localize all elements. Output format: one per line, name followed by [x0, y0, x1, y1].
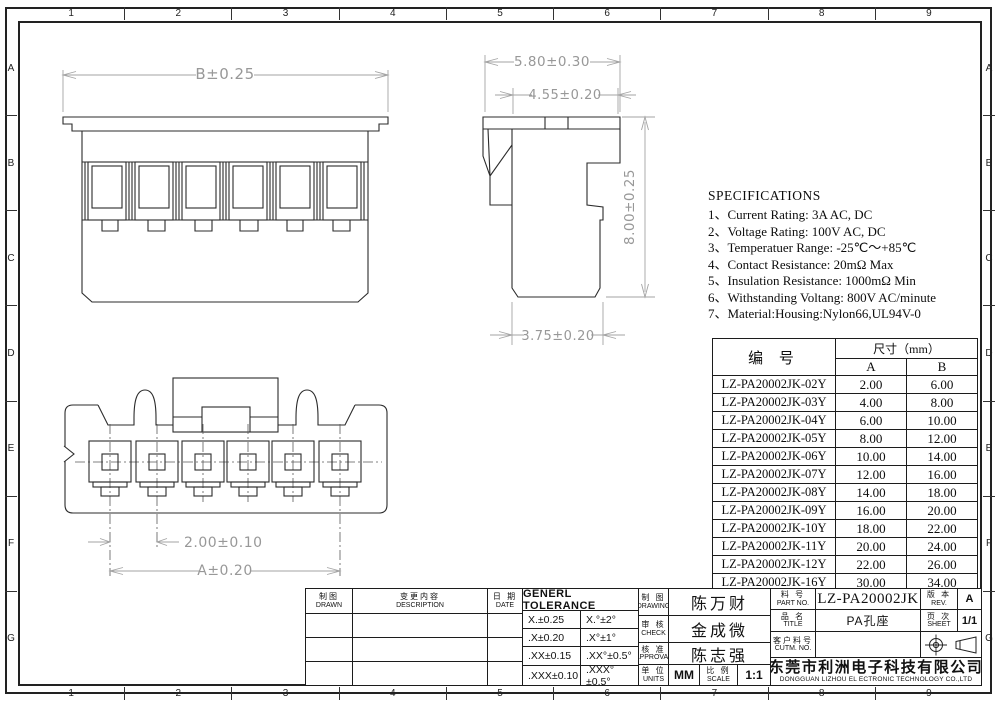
label-en: SHEET: [927, 621, 950, 629]
zone-number: 6: [554, 7, 661, 20]
dim-b-cell: 16.00: [907, 466, 978, 484]
zone-number: 9: [876, 687, 982, 700]
table-row: LZ-PA20002JK-12Y22.0026.00: [713, 556, 978, 574]
part-no-cell: LZ-PA20002JK-08Y: [713, 484, 836, 502]
rev-label-cell: 版 本REV.: [921, 589, 957, 609]
part-no-cell: LZ-PA20002JK-09Y: [713, 502, 836, 520]
dim-a-cell: 8.00: [836, 430, 907, 448]
company-name-cn: 东莞市利洲电子科技有限公司: [771, 660, 981, 677]
label-cn: 品 名: [781, 612, 805, 621]
tolerance-cell: .XX±0.15: [523, 647, 580, 665]
label-en: CUTM. NO.: [775, 645, 812, 653]
zone-number: 5: [447, 7, 554, 20]
label-en: REV.: [931, 600, 947, 608]
zone-letter: E: [983, 402, 995, 497]
zone-number: 6: [554, 687, 661, 700]
ruler-bottom: 1 2 3 4 5 6 7 8 9: [18, 687, 982, 700]
zone-letter: F: [983, 497, 995, 592]
ruler-top: 1 2 3 4 5 6 7 8 9: [18, 7, 982, 20]
ruler-right: A B C D E F G: [983, 21, 995, 686]
zone-number: 7: [661, 687, 768, 700]
table-row: LZ-PA20002JK-02Y2.006.00: [713, 376, 978, 394]
label-cn: 核 准: [641, 645, 665, 654]
tolerance-cell: .XXX°±0.5°: [581, 666, 638, 685]
scale-value-cell: 1:1: [738, 665, 770, 685]
zone-number: 1: [18, 687, 125, 700]
col-header-size: 尺寸（mm）: [836, 339, 978, 359]
label-cn: 料 号: [781, 590, 805, 599]
ruler-left: A B C D E F G: [5, 21, 17, 686]
col-header-a: A: [836, 358, 907, 375]
dim-text-side-inner: 4.55±0.20: [528, 88, 601, 103]
zone-letter: B: [5, 116, 17, 211]
dim-a-cell: 22.00: [836, 556, 907, 574]
part-no-cell: LZ-PA20002JK-04Y: [713, 412, 836, 430]
label-en: DATE: [496, 602, 514, 610]
revision-cell: [306, 614, 352, 637]
revision-cell: [353, 662, 487, 685]
pin-holes: [89, 441, 361, 496]
revision-cell: [488, 662, 522, 685]
company-cell: 东莞市利洲电子科技有限公司 DONGGUAN LIZHOU EL ECTRONI…: [771, 658, 981, 685]
dim-a-cell: 6.00: [836, 412, 907, 430]
table-row: LZ-PA20002JK-08Y14.0018.00: [713, 484, 978, 502]
zone-number: 1: [18, 7, 125, 20]
contact-cavities: [85, 162, 364, 220]
drawn-header-cell: 制图DRAWN: [306, 589, 352, 613]
table-row: LZ-PA20002JK-04Y6.0010.00: [713, 412, 978, 430]
table-header-row: 编 号 尺寸（mm）: [713, 339, 978, 359]
label-cn: 单 位: [641, 666, 665, 675]
table-row: LZ-PA20002JK-06Y10.0014.00: [713, 448, 978, 466]
label-en: CHECK: [641, 630, 666, 638]
latch-tab-inner: [202, 407, 250, 432]
zone-letter: E: [5, 402, 17, 497]
front-view-drawing: B±0.25: [50, 48, 400, 338]
spec-line: 1、Current Rating: 3A AC, DC: [708, 207, 988, 224]
drawing-label-cell: 制 图DRAWING: [639, 589, 668, 615]
revision-cell: [306, 638, 352, 661]
projection-symbol-cell: [921, 632, 981, 657]
dim-b-cell: 8.00: [907, 394, 978, 412]
dim-b-cell: 24.00: [907, 538, 978, 556]
zone-letter: G: [983, 592, 995, 686]
specifications-block: SPECIFICATIONS 1、Current Rating: 3A AC, …: [708, 188, 988, 323]
units-value-cell: MM: [669, 665, 699, 685]
dim-text-front-width: B±0.25: [195, 65, 254, 83]
units-label-cell: 单 位UNITS: [639, 665, 668, 685]
dim-b-cell: 20.00: [907, 502, 978, 520]
revision-cell: [306, 662, 352, 685]
tolerance-cell: X.°±2°: [581, 611, 638, 628]
revision-cell: [353, 638, 487, 661]
zone-letter: F: [5, 497, 17, 592]
label-en: SCALE: [707, 676, 730, 684]
tolerance-cell: .XXX±0.10: [523, 666, 580, 685]
zone-number: 4: [340, 7, 447, 20]
description-header-cell: 变更内容DESCRIPTION: [353, 589, 487, 613]
side-latch-outline: [483, 129, 512, 205]
housing-body-outline: [82, 131, 368, 302]
check-name-cell: 金成微: [669, 616, 770, 642]
zone-number: 3: [232, 687, 339, 700]
polarize-notch: [64, 446, 74, 462]
drawing-sheet: 1 2 3 4 5 6 7 8 9 1 2 3 4 5 6 7 8 9 A B …: [0, 0, 1000, 702]
label-cn: 制图: [319, 592, 339, 601]
title-block: 制图DRAWN 变更内容DESCRIPTION 日 期DATE GENERL T…: [305, 588, 982, 686]
label-en: DRAWN: [316, 602, 342, 610]
check-label-cell: 审 核CHECK: [639, 616, 668, 642]
dim-text-span: A±0.20: [197, 563, 252, 579]
side-body-outline: [512, 129, 620, 297]
product-name-cell: PA孔座: [816, 610, 920, 631]
zone-letter: A: [983, 21, 995, 116]
spec-line: 7、Material:Housing:Nylon66,UL94V-0: [708, 306, 988, 323]
spec-line: 3、Temperatuer Range: -25℃～+85℃: [708, 240, 988, 257]
spec-line: 4、Contact Resistance: 20mΩ Max: [708, 257, 988, 274]
label-en: DRAWING: [639, 603, 668, 611]
label-cn: 日 期: [493, 592, 517, 601]
approval-label-cell: 核 准APPROVAL: [639, 643, 668, 664]
zone-number: 3: [232, 7, 339, 20]
dim-b-cell: 22.00: [907, 520, 978, 538]
part-no-cell: LZ-PA20002JK-10Y: [713, 520, 836, 538]
part-no-cell: LZ-PA20002JK-07Y: [713, 466, 836, 484]
tolerance-title-cell: GENERL TOLERANCE: [523, 589, 638, 610]
dim-b-cell: 10.00: [907, 412, 978, 430]
tolerance-cell: .XX°±0.5°: [581, 647, 638, 665]
table-row: LZ-PA20002JK-07Y12.0016.00: [713, 466, 978, 484]
part-no-cell: LZ-PA20002JK-05Y: [713, 430, 836, 448]
label-cn: 版 本: [927, 590, 951, 599]
part-no-cell: LZ-PA20002JK-12Y: [713, 556, 836, 574]
zone-number: 5: [447, 687, 554, 700]
dim-a-cell: 14.00: [836, 484, 907, 502]
table-row: LZ-PA20002JK-09Y16.0020.00: [713, 502, 978, 520]
label-en: TITLE: [783, 621, 802, 629]
label-en: PART NO.: [777, 600, 809, 608]
cavity-shelf-notches: [82, 220, 368, 231]
scale-label-cell: 比 例SCALE: [700, 665, 737, 685]
label-cn: 制 图: [641, 593, 665, 602]
col-header-b: B: [907, 358, 978, 375]
dim-a-cell: 4.00: [836, 394, 907, 412]
zone-number: 4: [340, 687, 447, 700]
dim-a-cell: 18.00: [836, 520, 907, 538]
label-cn: 变更内容: [400, 592, 440, 601]
table-row: LZ-PA20002JK-10Y18.0022.00: [713, 520, 978, 538]
part-no-value-cell: LZ-PA20002JK: [816, 589, 920, 609]
zone-number: 7: [661, 7, 768, 20]
side-view-drawing: 5.80±0.30 4.55±0.20 8.00±0.25 3.75±0.20: [450, 40, 680, 360]
zone-number: 2: [125, 687, 232, 700]
bottom-top-profile-left: [98, 390, 173, 425]
spec-line: 2、Voltage Rating: 100V AC, DC: [708, 224, 988, 241]
revision-cell: [353, 614, 487, 637]
third-angle-projection-icon: [923, 634, 979, 656]
part-no-cell: LZ-PA20002JK-02Y: [713, 376, 836, 394]
label-cn: 审 核: [641, 620, 665, 629]
part-no-cell: LZ-PA20002JK-11Y: [713, 538, 836, 556]
dim-a-cell: 12.00: [836, 466, 907, 484]
table-row: LZ-PA20002JK-11Y20.0024.00: [713, 538, 978, 556]
zone-letter: G: [5, 592, 17, 686]
part-no-label-cell: 料 号PART NO.: [771, 589, 815, 609]
dim-b-cell: 26.00: [907, 556, 978, 574]
dim-text-side-height: 8.00±0.25: [622, 169, 638, 245]
part-no-cell: LZ-PA20002JK-03Y: [713, 394, 836, 412]
label-cn: 客户料号: [773, 636, 813, 645]
centerlines: [75, 424, 382, 576]
product-label-cell: 品 名TITLE: [771, 610, 815, 631]
table-row: LZ-PA20002JK-03Y4.008.00: [713, 394, 978, 412]
tolerance-cell: .X°±1°: [581, 629, 638, 646]
sheet-label-cell: 页 次SHEET: [921, 610, 957, 631]
rev-value-cell: A: [958, 589, 981, 609]
zone-letter: D: [5, 306, 17, 401]
label-en: APPROVAL: [639, 654, 668, 662]
table-row: LZ-PA20002JK-05Y8.0012.00: [713, 430, 978, 448]
drawing-name-cell: 陈万财: [669, 589, 770, 615]
approval-name-cell: 陈志强: [669, 643, 770, 664]
dim-text-side-bottom: 3.75±0.20: [521, 329, 594, 344]
zone-letter: C: [5, 211, 17, 306]
part-no-cell: LZ-PA20002JK-06Y: [713, 448, 836, 466]
label-en: DESCRIPTION: [396, 602, 444, 610]
dim-b-cell: 12.00: [907, 430, 978, 448]
spec-line: 6、Withstanding Voltang: 800V AC/minute: [708, 290, 988, 307]
customer-part-no-label-cell: 客户料号CUTM. NO.: [771, 632, 815, 657]
revision-cell: [488, 638, 522, 661]
label-cn: 页 次: [927, 612, 951, 621]
dim-a-cell: 16.00: [836, 502, 907, 520]
side-flange-outline: [483, 117, 620, 129]
dim-a-cell: 20.00: [836, 538, 907, 556]
tolerance-cell: .X±0.20: [523, 629, 580, 646]
sheet-value-cell: 1/1: [958, 610, 981, 631]
dim-b-cell: 14.00: [907, 448, 978, 466]
dim-text-pitch: 2.00±0.10: [184, 535, 263, 551]
zone-letter: A: [5, 21, 17, 116]
bottom-top-profile-right: [278, 390, 355, 425]
col-header-part-no: 编 号: [713, 339, 836, 376]
customer-part-no-value-cell: [816, 632, 920, 657]
zone-number: 8: [769, 7, 876, 20]
housing-flange-outline: [63, 117, 388, 131]
dim-b-cell: 6.00: [907, 376, 978, 394]
dim-b-cell: 18.00: [907, 484, 978, 502]
zone-number: 9: [876, 7, 982, 20]
zone-number: 8: [769, 687, 876, 700]
dim-a-cell: 2.00: [836, 376, 907, 394]
zone-number: 2: [125, 7, 232, 20]
company-name-en: DONGGUAN LIZHOU EL ECTRONIC TECHNOLOGY C…: [780, 676, 972, 683]
size-table: 编 号 尺寸（mm） A B LZ-PA20002JK-02Y2.006.00 …: [712, 338, 978, 592]
label-cn: 比 例: [706, 666, 730, 675]
revision-cell: [488, 614, 522, 637]
label-en: UNITS: [643, 676, 664, 684]
date-header-cell: 日 期DATE: [488, 589, 522, 613]
specifications-title: SPECIFICATIONS: [708, 188, 988, 204]
dim-a-cell: 10.00: [836, 448, 907, 466]
dim-text-side-outer: 5.80±0.30: [514, 54, 590, 70]
spec-line: 5、Insulation Resistance: 1000mΩ Min: [708, 273, 988, 290]
tolerance-cell: X.±0.25: [523, 611, 580, 628]
bottom-view-drawing: 2.00±0.10 A±0.20: [50, 372, 400, 602]
